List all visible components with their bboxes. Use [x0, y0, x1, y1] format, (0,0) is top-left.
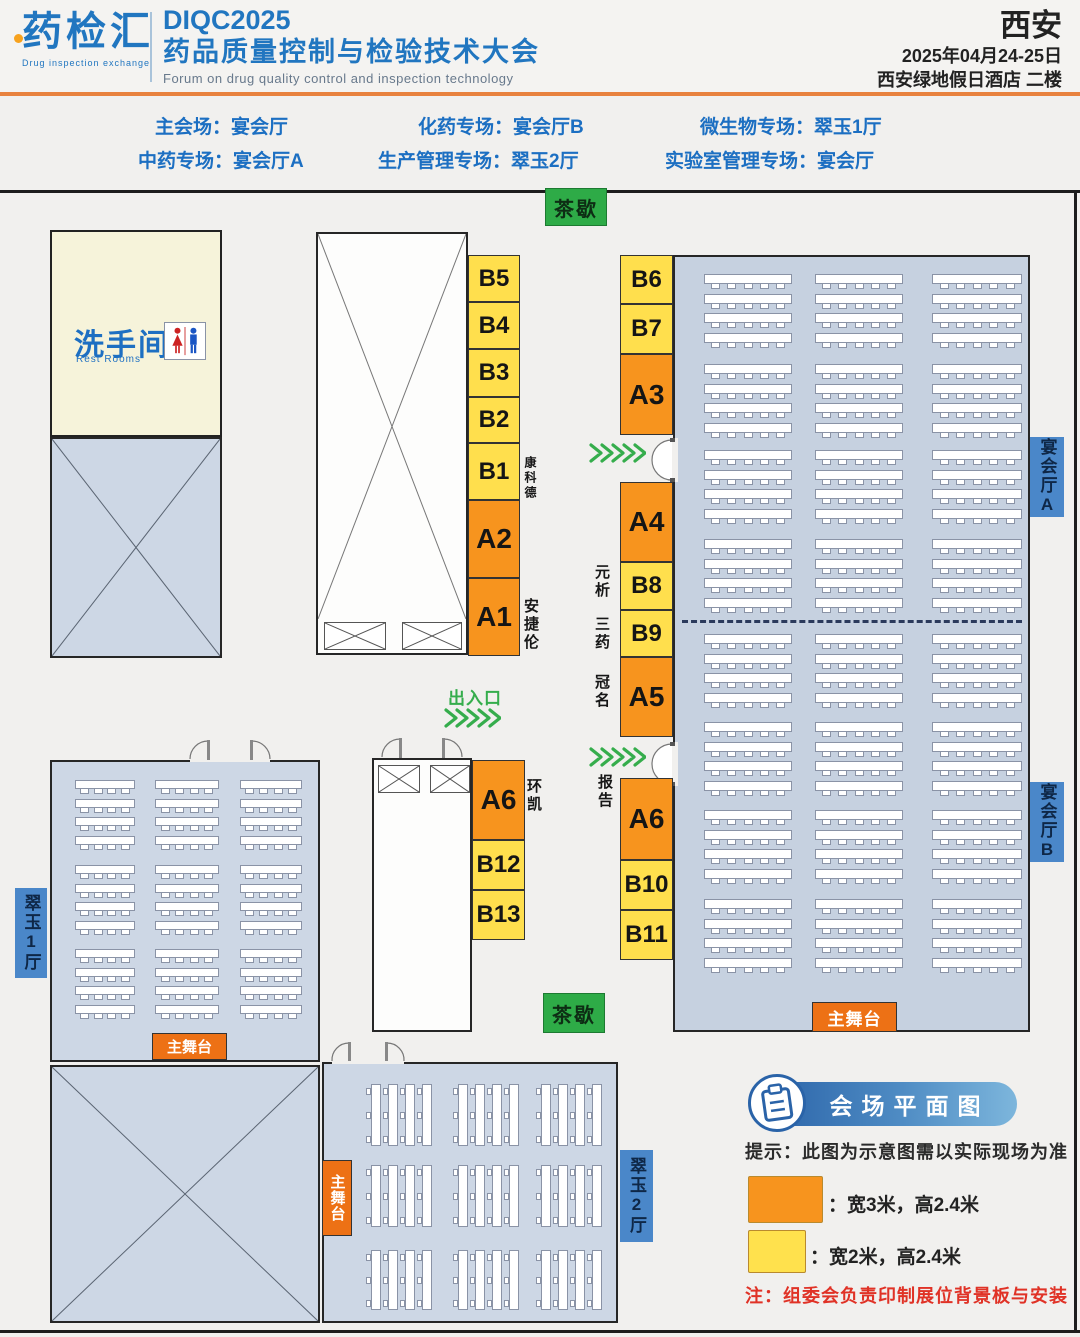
- chair: [744, 412, 753, 418]
- booth-A2-a2: A2: [468, 500, 520, 578]
- chair: [973, 928, 982, 934]
- event-date: 2025年04月24-25日: [877, 44, 1062, 68]
- chair: [453, 1254, 458, 1261]
- chair: [744, 459, 753, 465]
- chair: [760, 967, 769, 973]
- chair: [94, 929, 103, 935]
- chair: [400, 1088, 405, 1095]
- booth-B2-b2: B2: [468, 397, 520, 443]
- chair: [973, 568, 982, 574]
- chair: [94, 910, 103, 916]
- chair: [855, 928, 864, 934]
- chair: [175, 1013, 184, 1019]
- chair: [417, 1136, 422, 1143]
- seating-table: [388, 1165, 398, 1227]
- chair: [855, 731, 864, 737]
- chair: [871, 432, 880, 438]
- chair: [887, 587, 896, 593]
- restroom-subtitle: Rest Rooms: [76, 354, 141, 365]
- chair: [175, 910, 184, 916]
- chair: [107, 1013, 116, 1019]
- chair: [956, 947, 965, 953]
- chair: [956, 967, 965, 973]
- chair: [470, 1254, 475, 1261]
- chair: [776, 518, 785, 524]
- chair: [760, 839, 769, 845]
- chair: [760, 819, 769, 825]
- chair: [940, 303, 949, 309]
- chair: [940, 858, 949, 864]
- chair: [744, 498, 753, 504]
- chair: [887, 479, 896, 485]
- chair: [822, 819, 831, 825]
- chair: [259, 957, 268, 963]
- chair: [887, 878, 896, 884]
- chair: [989, 967, 998, 973]
- chair: [417, 1300, 422, 1307]
- chair: [288, 873, 297, 879]
- chair: [80, 957, 89, 963]
- chair: [989, 947, 998, 953]
- seating-table: [458, 1084, 468, 1146]
- chair: [744, 518, 753, 524]
- chair: [940, 342, 949, 348]
- chair: [940, 607, 949, 613]
- chair: [956, 731, 965, 737]
- chair: [1006, 858, 1015, 864]
- chair: [822, 731, 831, 737]
- chair: [744, 908, 753, 914]
- chair: [161, 994, 170, 1000]
- chair: [288, 957, 297, 963]
- seating-table: [422, 1165, 432, 1227]
- chair: [1006, 548, 1015, 554]
- escalator-icon: [430, 765, 470, 793]
- chair: [727, 432, 736, 438]
- chair: [776, 587, 785, 593]
- chair: [245, 929, 254, 935]
- chair: [855, 393, 864, 399]
- chair: [587, 1300, 592, 1307]
- legend-orange-desc: ：宽3米，高2.4米: [828, 1190, 979, 1217]
- chair: [956, 498, 965, 504]
- chair: [727, 607, 736, 613]
- seating-table: [509, 1250, 519, 1310]
- chair: [587, 1112, 592, 1119]
- bottom-wall: [0, 1330, 1080, 1333]
- chair: [744, 342, 753, 348]
- chair: [175, 929, 184, 935]
- chair: [570, 1136, 575, 1143]
- chair: [940, 459, 949, 465]
- entrance-label: 出入口: [448, 684, 502, 709]
- chair: [855, 432, 864, 438]
- chair: [989, 643, 998, 649]
- chair: [940, 587, 949, 593]
- chair: [417, 1254, 422, 1261]
- chair: [570, 1112, 575, 1119]
- chair: [204, 910, 213, 916]
- seating-table: [422, 1250, 432, 1310]
- chair: [587, 1277, 592, 1284]
- chair: [107, 825, 116, 831]
- chair: [776, 947, 785, 953]
- chair: [956, 643, 965, 649]
- chair: [855, 587, 864, 593]
- chair: [727, 819, 736, 825]
- chair: [1006, 607, 1015, 613]
- chair: [453, 1112, 458, 1119]
- booth-A5-a5: A5: [620, 657, 673, 737]
- chair: [190, 825, 199, 831]
- restroom-icon: [164, 322, 206, 360]
- chair: [587, 1136, 592, 1143]
- chair: [107, 994, 116, 1000]
- chair: [760, 751, 769, 757]
- chair: [121, 892, 130, 898]
- door-icon: [650, 438, 678, 482]
- chair: [871, 878, 880, 884]
- chair: [504, 1254, 509, 1261]
- chair: [940, 548, 949, 554]
- chair: [1006, 283, 1015, 289]
- chair: [245, 844, 254, 850]
- chair: [940, 643, 949, 649]
- chair: [727, 682, 736, 688]
- chair: [760, 702, 769, 708]
- chair: [871, 412, 880, 418]
- chair: [487, 1217, 492, 1224]
- chair: [744, 587, 753, 593]
- chair: [871, 518, 880, 524]
- chair: [940, 731, 949, 737]
- chair: [161, 788, 170, 794]
- chair: [822, 498, 831, 504]
- double-door-icon: [328, 1038, 408, 1064]
- event-info: 西安 2025年04月24-25日 西安绿地假日酒店 二楼: [877, 8, 1062, 92]
- chair: [366, 1193, 371, 1200]
- chair: [956, 479, 965, 485]
- chair: [727, 663, 736, 669]
- chair: [956, 819, 965, 825]
- seating-table: [371, 1250, 381, 1310]
- chair: [417, 1193, 422, 1200]
- chair: [1006, 303, 1015, 309]
- chair: [107, 844, 116, 850]
- door-arrows-icon: [588, 443, 646, 463]
- booth-B13-b13: B13: [472, 890, 525, 940]
- chair: [711, 947, 720, 953]
- chair: [855, 967, 864, 973]
- seating-table: [458, 1165, 468, 1227]
- chair: [245, 892, 254, 898]
- chair: [259, 807, 268, 813]
- seating-table: [592, 1165, 602, 1227]
- chair: [204, 825, 213, 831]
- chair: [760, 303, 769, 309]
- legend-title: 会场平面图: [830, 1087, 990, 1121]
- chair: [989, 303, 998, 309]
- seating-table: [541, 1084, 551, 1146]
- sponsor-label-guanming: 冠名: [594, 674, 609, 710]
- stage-cuiyu1: 主舞台: [152, 1033, 227, 1060]
- chair: [973, 908, 982, 914]
- chair: [107, 910, 116, 916]
- chair: [1006, 947, 1015, 953]
- chair: [887, 858, 896, 864]
- chair: [470, 1112, 475, 1119]
- chair: [175, 788, 184, 794]
- chair: [121, 807, 130, 813]
- chair: [744, 283, 753, 289]
- booth-B10-b10: B10: [620, 860, 673, 910]
- chair: [887, 947, 896, 953]
- chair: [871, 587, 880, 593]
- chair: [940, 908, 949, 914]
- chair: [973, 479, 982, 485]
- chair: [776, 731, 785, 737]
- chair: [744, 839, 753, 845]
- chair: [887, 839, 896, 845]
- chair: [822, 682, 831, 688]
- chair: [822, 908, 831, 914]
- chair: [776, 342, 785, 348]
- chair: [940, 498, 949, 504]
- chair: [711, 518, 720, 524]
- chair: [776, 412, 785, 418]
- chair: [570, 1277, 575, 1284]
- booth-B6-b6: B6: [620, 255, 673, 304]
- chair: [855, 770, 864, 776]
- chair: [744, 770, 753, 776]
- floor-plan-poster: 药检汇 Drug inspection exchange DIQC2025 药品…: [0, 0, 1080, 1337]
- chair: [989, 342, 998, 348]
- chair: [274, 957, 283, 963]
- chair: [536, 1169, 541, 1176]
- chair: [776, 928, 785, 934]
- chair: [121, 976, 130, 982]
- chair: [161, 1013, 170, 1019]
- booth-B12-b12: B12: [472, 840, 525, 890]
- booth-A1-a1: A1: [468, 578, 520, 656]
- chair: [274, 892, 283, 898]
- chair: [973, 702, 982, 708]
- logo-divider: [150, 12, 152, 82]
- chair: [989, 373, 998, 379]
- chair: [1006, 790, 1015, 796]
- chair: [288, 1013, 297, 1019]
- chair: [838, 607, 847, 613]
- chair: [989, 682, 998, 688]
- chair: [366, 1277, 371, 1284]
- chair: [871, 682, 880, 688]
- chair: [760, 393, 769, 399]
- chair: [366, 1112, 371, 1119]
- stage-cuiyu2: 主舞台: [322, 1160, 352, 1236]
- chair: [121, 788, 130, 794]
- chair: [487, 1112, 492, 1119]
- chair: [776, 839, 785, 845]
- chair: [940, 751, 949, 757]
- chair: [940, 283, 949, 289]
- hall-tag-cuiyu-1: 翠玉1厅: [15, 888, 47, 978]
- chair: [871, 548, 880, 554]
- chair: [776, 498, 785, 504]
- chair: [121, 844, 130, 850]
- chair: [855, 498, 864, 504]
- chair: [887, 967, 896, 973]
- seating-table: [592, 1250, 602, 1310]
- chair: [822, 663, 831, 669]
- chair: [776, 663, 785, 669]
- chair: [776, 393, 785, 399]
- chair: [274, 994, 283, 1000]
- chair: [121, 825, 130, 831]
- chair: [973, 751, 982, 757]
- chair: [744, 373, 753, 379]
- chair: [94, 892, 103, 898]
- chair: [288, 844, 297, 850]
- chair: [760, 498, 769, 504]
- chair: [711, 412, 720, 418]
- chair: [887, 663, 896, 669]
- chair: [838, 967, 847, 973]
- chair: [871, 663, 880, 669]
- chair: [274, 825, 283, 831]
- chair: [822, 607, 831, 613]
- chair: [776, 283, 785, 289]
- chair: [887, 498, 896, 504]
- chair: [1006, 373, 1015, 379]
- chair: [838, 682, 847, 688]
- chair: [288, 807, 297, 813]
- chair: [973, 858, 982, 864]
- chair: [259, 825, 268, 831]
- chair: [727, 518, 736, 524]
- chair: [838, 303, 847, 309]
- chair: [838, 858, 847, 864]
- chair: [259, 994, 268, 1000]
- chair: [855, 518, 864, 524]
- chair: [587, 1217, 592, 1224]
- chair: [776, 702, 785, 708]
- chair: [887, 731, 896, 737]
- chair: [989, 819, 998, 825]
- chair: [973, 548, 982, 554]
- chair: [855, 908, 864, 914]
- chair: [822, 568, 831, 574]
- chair: [175, 873, 184, 879]
- chair: [383, 1169, 388, 1176]
- chair: [107, 788, 116, 794]
- chair: [871, 731, 880, 737]
- chair: [973, 342, 982, 348]
- chair: [855, 790, 864, 796]
- legend-yellow-desc: ：宽2米，高2.4米: [810, 1242, 961, 1269]
- chair: [161, 957, 170, 963]
- chair: [453, 1136, 458, 1143]
- chair: [973, 322, 982, 328]
- chair: [711, 459, 720, 465]
- chair: [1006, 568, 1015, 574]
- clipboard-icon: [748, 1074, 806, 1132]
- chair: [80, 807, 89, 813]
- chair: [245, 957, 254, 963]
- chair: [855, 663, 864, 669]
- chair: [504, 1136, 509, 1143]
- chair: [973, 432, 982, 438]
- chair: [727, 322, 736, 328]
- chair: [570, 1217, 575, 1224]
- logo-subtitle: Drug inspection exchange: [22, 58, 154, 68]
- chair: [744, 878, 753, 884]
- chair: [989, 432, 998, 438]
- chair: [80, 844, 89, 850]
- chair: [587, 1254, 592, 1261]
- seating-table: [492, 1084, 502, 1146]
- chair: [383, 1300, 388, 1307]
- chair: [175, 976, 184, 982]
- chair: [288, 994, 297, 1000]
- chair: [536, 1088, 541, 1095]
- chair: [744, 702, 753, 708]
- chair: [871, 342, 880, 348]
- legend-yellow-swatch: [748, 1230, 806, 1273]
- chair: [536, 1217, 541, 1224]
- chair: [973, 967, 982, 973]
- chair: [887, 751, 896, 757]
- chair: [245, 807, 254, 813]
- chair: [989, 479, 998, 485]
- chair: [760, 908, 769, 914]
- chair: [989, 587, 998, 593]
- session-micro: 微生物专场：翠玉1厅: [700, 112, 882, 139]
- chair: [822, 967, 831, 973]
- chair: [245, 788, 254, 794]
- chair: [204, 873, 213, 879]
- chair: [822, 839, 831, 845]
- chair: [711, 303, 720, 309]
- chair: [887, 770, 896, 776]
- chair: [887, 643, 896, 649]
- session-production: 生产管理专场：翠玉2厅: [378, 146, 579, 173]
- chair: [887, 322, 896, 328]
- chair: [504, 1193, 509, 1200]
- chair: [570, 1300, 575, 1307]
- chair: [727, 373, 736, 379]
- chair: [553, 1136, 558, 1143]
- legend-note: 注：组委会负责印制展位背景板与安装: [745, 1282, 1068, 1308]
- chair: [989, 839, 998, 845]
- chair: [487, 1277, 492, 1284]
- chair: [288, 910, 297, 916]
- chair: [744, 548, 753, 554]
- chair: [838, 548, 847, 554]
- chair: [536, 1277, 541, 1284]
- booth-B8-b8: B8: [620, 562, 673, 610]
- chair: [453, 1193, 458, 1200]
- chair: [838, 322, 847, 328]
- chair: [838, 342, 847, 348]
- chair: [121, 1013, 130, 1019]
- booth-B7-b7: B7: [620, 304, 673, 354]
- seating-table: [422, 1084, 432, 1146]
- chair: [940, 412, 949, 418]
- chair: [760, 947, 769, 953]
- chair: [760, 548, 769, 554]
- escalator-icon: [324, 622, 386, 650]
- chair: [940, 947, 949, 953]
